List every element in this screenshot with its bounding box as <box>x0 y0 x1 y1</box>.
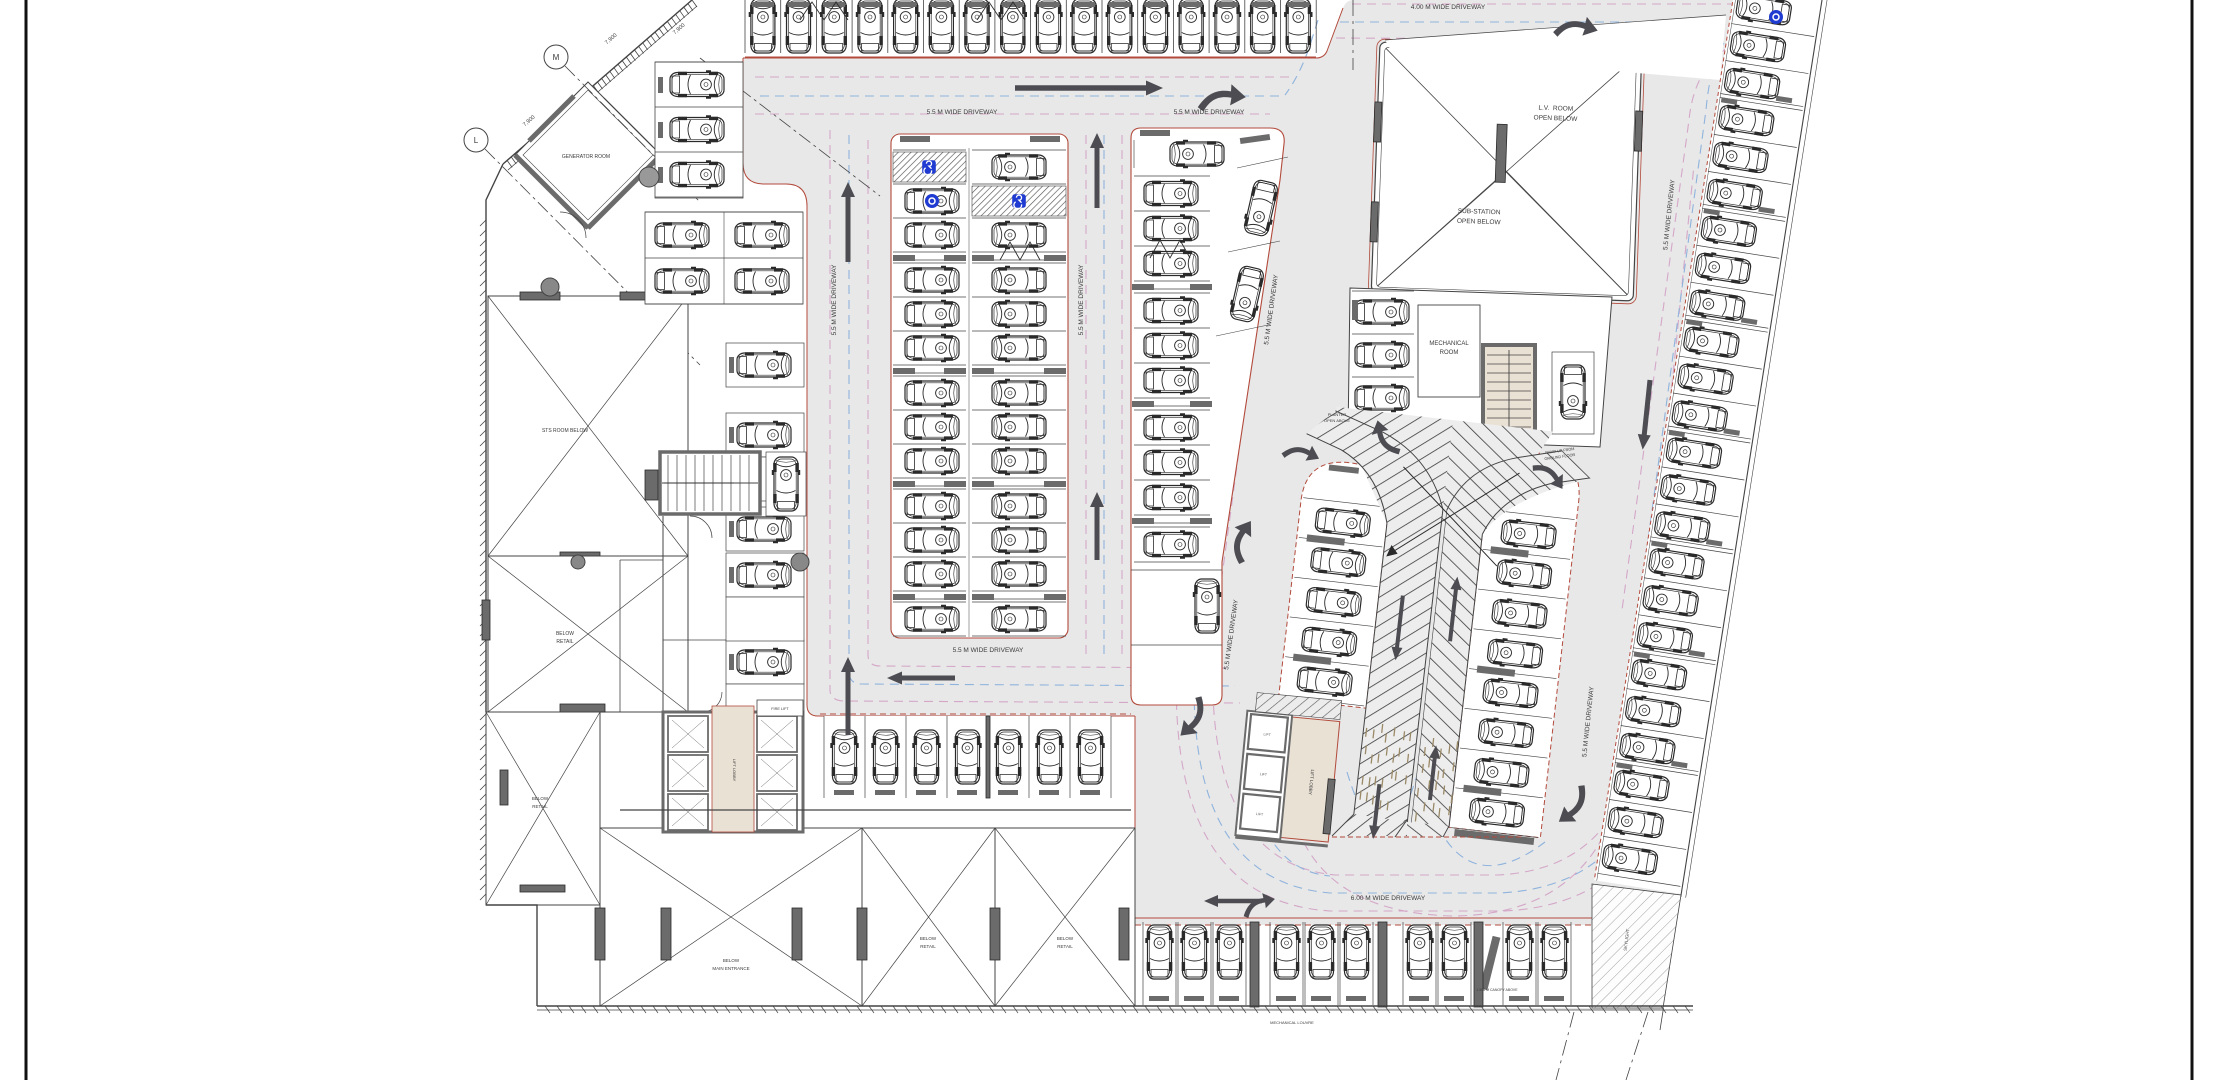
svg-text:5.5 M WIDE DRIVEWAY: 5.5 M WIDE DRIVEWAY <box>927 109 998 116</box>
svg-text:4.00 M WIDE DRIVEWAY: 4.00 M WIDE DRIVEWAY <box>1411 4 1486 11</box>
svg-text:MAIN ENTRANCE: MAIN ENTRANCE <box>712 966 749 971</box>
svg-text:RETAIL: RETAIL <box>920 944 936 949</box>
svg-text:6.00 M WIDE DRIVEWAY: 6.00 M WIDE DRIVEWAY <box>1351 895 1426 902</box>
svg-text:LIFT LOBBY: LIFT LOBBY <box>732 759 737 782</box>
svg-text:RETAIL: RETAIL <box>1057 944 1073 949</box>
svg-text:1.500 M CANOPY ABOVE: 1.500 M CANOPY ABOVE <box>1476 988 1518 992</box>
svg-text:BELOW: BELOW <box>1057 936 1074 941</box>
svg-text:BELOW: BELOW <box>532 796 549 801</box>
svg-text:5.5 M WIDE DRIVEWAY: 5.5 M WIDE DRIVEWAY <box>1174 109 1245 116</box>
svg-text:LIFT: LIFT <box>1259 772 1268 777</box>
svg-text:L: L <box>474 136 479 145</box>
svg-text:LIFT: LIFT <box>1256 812 1265 817</box>
svg-text:OPEN ABOVE: OPEN ABOVE <box>1324 418 1350 423</box>
svg-text:GENERATOR ROOM: GENERATOR ROOM <box>562 154 610 160</box>
svg-text:5.5 M WIDE DRIVEWAY: 5.5 M WIDE DRIVEWAY <box>831 264 838 335</box>
svg-text:5.5 M WIDE DRIVEWAY: 5.5 M WIDE DRIVEWAY <box>953 647 1024 654</box>
svg-text:5.5 M WIDE DRIVEWAY: 5.5 M WIDE DRIVEWAY <box>1078 264 1085 335</box>
svg-text:BELOW: BELOW <box>556 631 574 637</box>
svg-text:BELOW: BELOW <box>920 936 937 941</box>
svg-text:MECHANICAL: MECHANICAL <box>1429 341 1469 347</box>
svg-text:RETAIL: RETAIL <box>532 804 548 809</box>
svg-text:PLANTER: PLANTER <box>1328 412 1347 417</box>
svg-text:ROOM: ROOM <box>1440 350 1459 356</box>
svg-text:STS ROOM BELOW: STS ROOM BELOW <box>542 428 588 434</box>
svg-text:M: M <box>553 53 560 62</box>
svg-text:L.V. ROOM: L.V. ROOM <box>1538 105 1573 113</box>
svg-text:FIRE LIFT: FIRE LIFT <box>771 707 789 711</box>
svg-text:RETAIL: RETAIL <box>556 639 573 645</box>
svg-text:BELOW: BELOW <box>723 958 740 963</box>
svg-text:LIFT: LIFT <box>1263 732 1272 737</box>
svg-text:MECHANICAL LOUVRE: MECHANICAL LOUVRE <box>1270 1020 1314 1025</box>
